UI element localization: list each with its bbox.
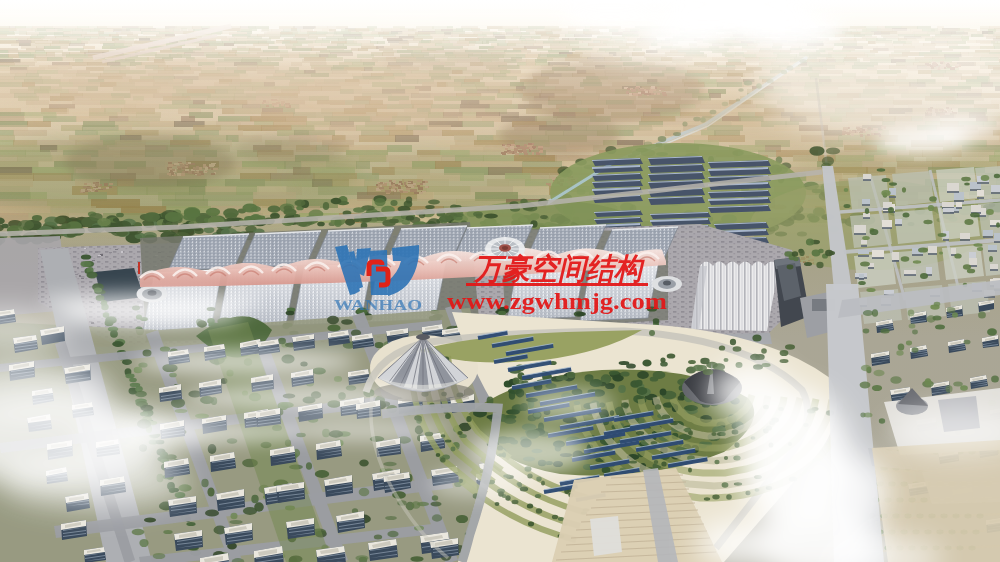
svg-text:WANHAO: WANHAO <box>334 296 422 313</box>
svg-text:万豪空间结构: 万豪空间结构 <box>472 252 645 285</box>
svg-text:www.zgwhmjg.com: www.zgwhmjg.com <box>447 288 667 314</box>
